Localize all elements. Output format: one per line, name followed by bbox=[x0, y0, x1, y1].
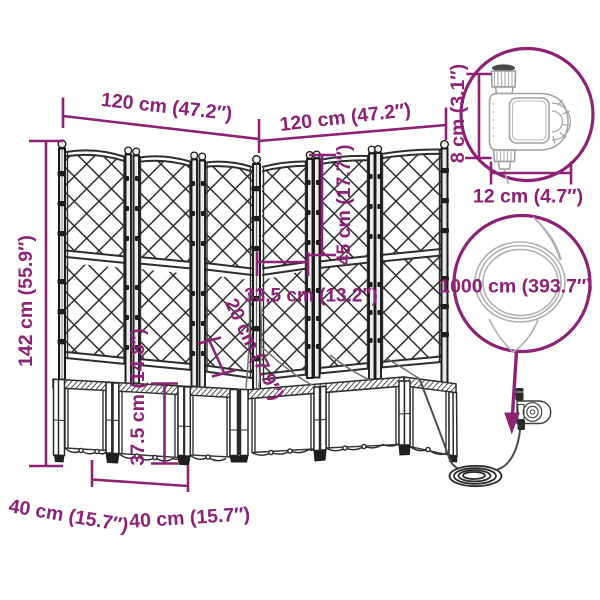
svg-text:8 cm (3.1″): 8 cm (3.1″) bbox=[447, 64, 469, 163]
svg-text:45 cm (17.7″): 45 cm (17.7″) bbox=[333, 145, 355, 266]
svg-text:12 cm (4.7″): 12 cm (4.7″) bbox=[473, 186, 583, 208]
svg-text:120 cm (47.2″): 120 cm (47.2″) bbox=[100, 89, 233, 125]
svg-text:33,5 cm (13.2″): 33,5 cm (13.2″) bbox=[244, 286, 378, 307]
svg-text:40 cm (15.7″): 40 cm (15.7″) bbox=[7, 495, 130, 537]
svg-text:142 cm (55.9″): 142 cm (55.9″) bbox=[15, 235, 37, 367]
svg-text:40 cm (15.7″): 40 cm (15.7″) bbox=[129, 503, 251, 532]
svg-text:1000 cm (393.7″): 1000 cm (393.7″) bbox=[439, 276, 593, 298]
svg-text:37.5 cm (14.8″): 37.5 cm (14.8″) bbox=[127, 328, 149, 465]
